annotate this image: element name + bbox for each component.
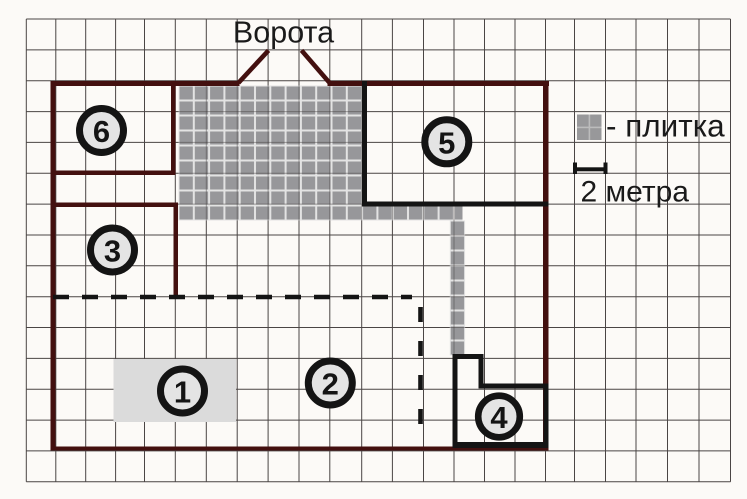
svg-text:6: 6 [93,114,110,149]
svg-text:2: 2 [322,367,339,402]
svg-text:1: 1 [174,375,191,410]
svg-text:4: 4 [490,400,508,435]
svg-text:Ворота: Ворота [233,16,334,50]
svg-text:5: 5 [438,125,455,160]
svg-text:2 метра: 2 метра [581,176,690,209]
svg-text:- плитка: - плитка [606,108,725,144]
svg-text:3: 3 [104,234,121,269]
